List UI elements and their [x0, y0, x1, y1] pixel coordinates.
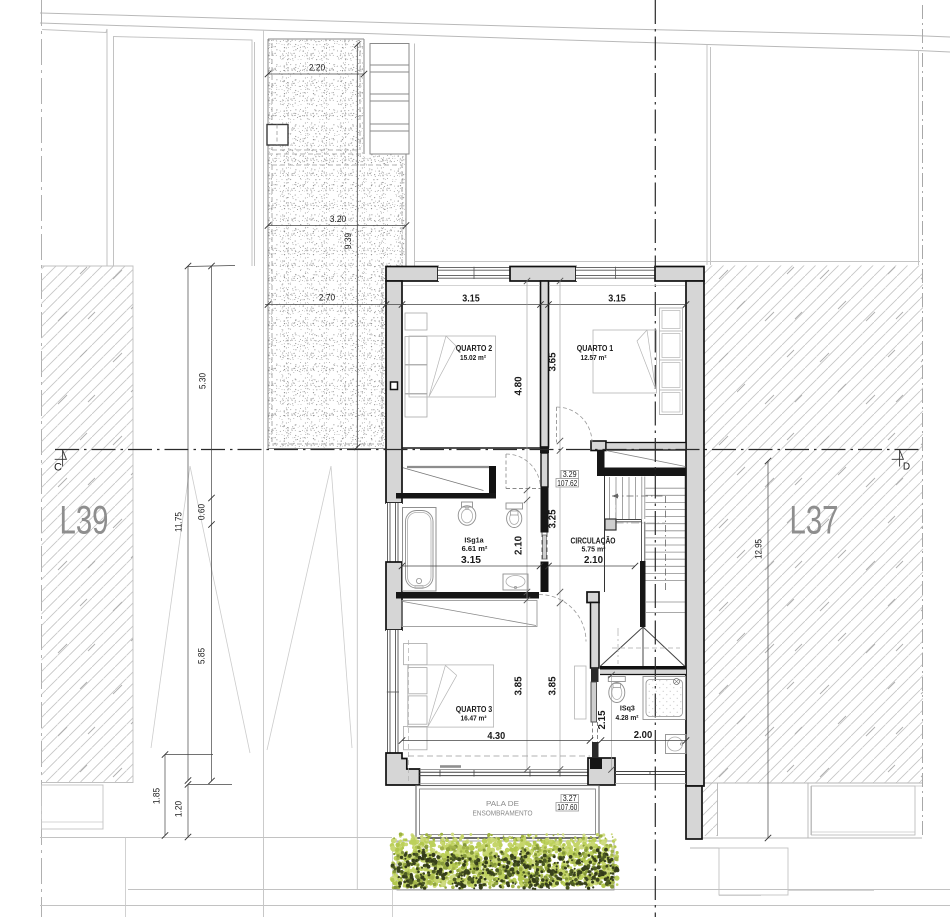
- svg-text:16.47 m²: 16.47 m²: [461, 713, 487, 722]
- svg-text:2.20: 2.20: [309, 63, 325, 74]
- svg-text:3.15: 3.15: [461, 555, 481, 566]
- svg-text:3.65: 3.65: [548, 352, 559, 371]
- svg-text:3.27: 3.27: [563, 794, 577, 803]
- svg-text:12.57 m²: 12.57 m²: [581, 353, 607, 362]
- svg-text:3.25: 3.25: [548, 509, 559, 528]
- svg-text:3.20: 3.20: [330, 214, 346, 225]
- svg-text:3.29: 3.29: [563, 470, 577, 479]
- svg-text:2.15: 2.15: [597, 710, 608, 729]
- svg-text:C: C: [54, 462, 62, 474]
- svg-text:D: D: [903, 462, 910, 473]
- svg-text:ISq3: ISq3: [620, 704, 635, 713]
- svg-text:5.30: 5.30: [198, 373, 209, 389]
- svg-text:6.61 m²: 6.61 m²: [462, 544, 488, 553]
- svg-text:5.75 m²: 5.75 m²: [582, 545, 606, 554]
- svg-text:4.30: 4.30: [487, 731, 505, 742]
- svg-text:15.02 m²: 15.02 m²: [460, 353, 486, 362]
- svg-text:107.62: 107.62: [557, 479, 577, 488]
- svg-text:L39: L39: [60, 499, 109, 543]
- svg-text:2.10: 2.10: [514, 536, 525, 555]
- svg-text:4.28 m²: 4.28 m²: [616, 713, 639, 722]
- svg-text:3.15: 3.15: [462, 294, 480, 305]
- svg-text:5.85: 5.85: [197, 648, 208, 664]
- svg-text:2.10: 2.10: [584, 555, 603, 566]
- svg-text:PALA DE: PALA DE: [486, 799, 519, 808]
- svg-text:1.20: 1.20: [174, 801, 185, 817]
- svg-text:1.85: 1.85: [152, 788, 163, 804]
- svg-text:3.85: 3.85: [514, 676, 525, 695]
- svg-text:3.15: 3.15: [608, 294, 626, 305]
- svg-text:3.85: 3.85: [548, 676, 559, 695]
- svg-text:ENSOMBRAMENTO: ENSOMBRAMENTO: [473, 808, 533, 817]
- svg-text:11.75: 11.75: [174, 512, 185, 532]
- svg-text:L37: L37: [790, 499, 839, 543]
- svg-text:107.60: 107.60: [557, 803, 577, 812]
- svg-text:12.95: 12.95: [754, 539, 765, 559]
- svg-text:4.80: 4.80: [514, 376, 525, 395]
- svg-text:2.70: 2.70: [319, 293, 335, 304]
- svg-text:0.60: 0.60: [197, 504, 208, 520]
- svg-text:9.39: 9.39: [343, 233, 354, 249]
- svg-text:2.00: 2.00: [634, 730, 653, 741]
